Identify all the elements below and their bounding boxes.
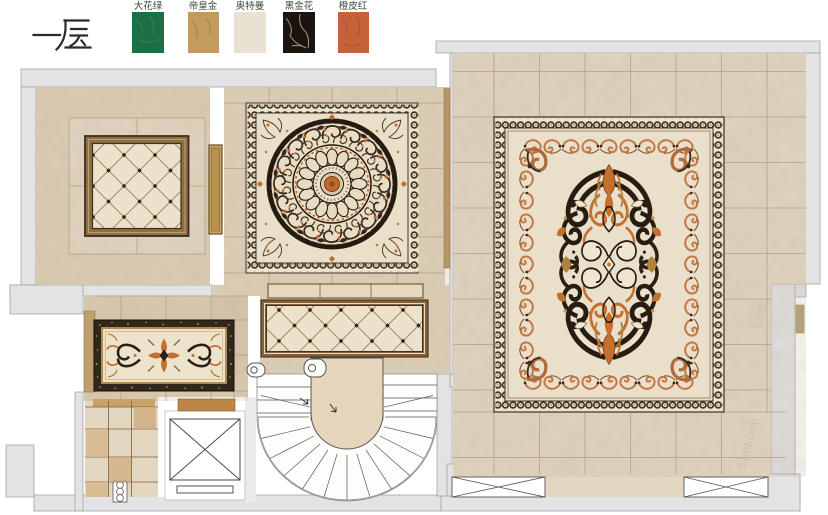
svg-text:帝皇金: 帝皇金 xyxy=(189,0,218,12)
svg-text:黑金花: 黑金花 xyxy=(285,0,314,12)
svg-text:奥特曼: 奥特曼 xyxy=(236,0,265,12)
svg-text:大花绿: 大花绿 xyxy=(134,0,163,12)
svg-text:橙皮红: 橙皮红 xyxy=(339,0,368,12)
